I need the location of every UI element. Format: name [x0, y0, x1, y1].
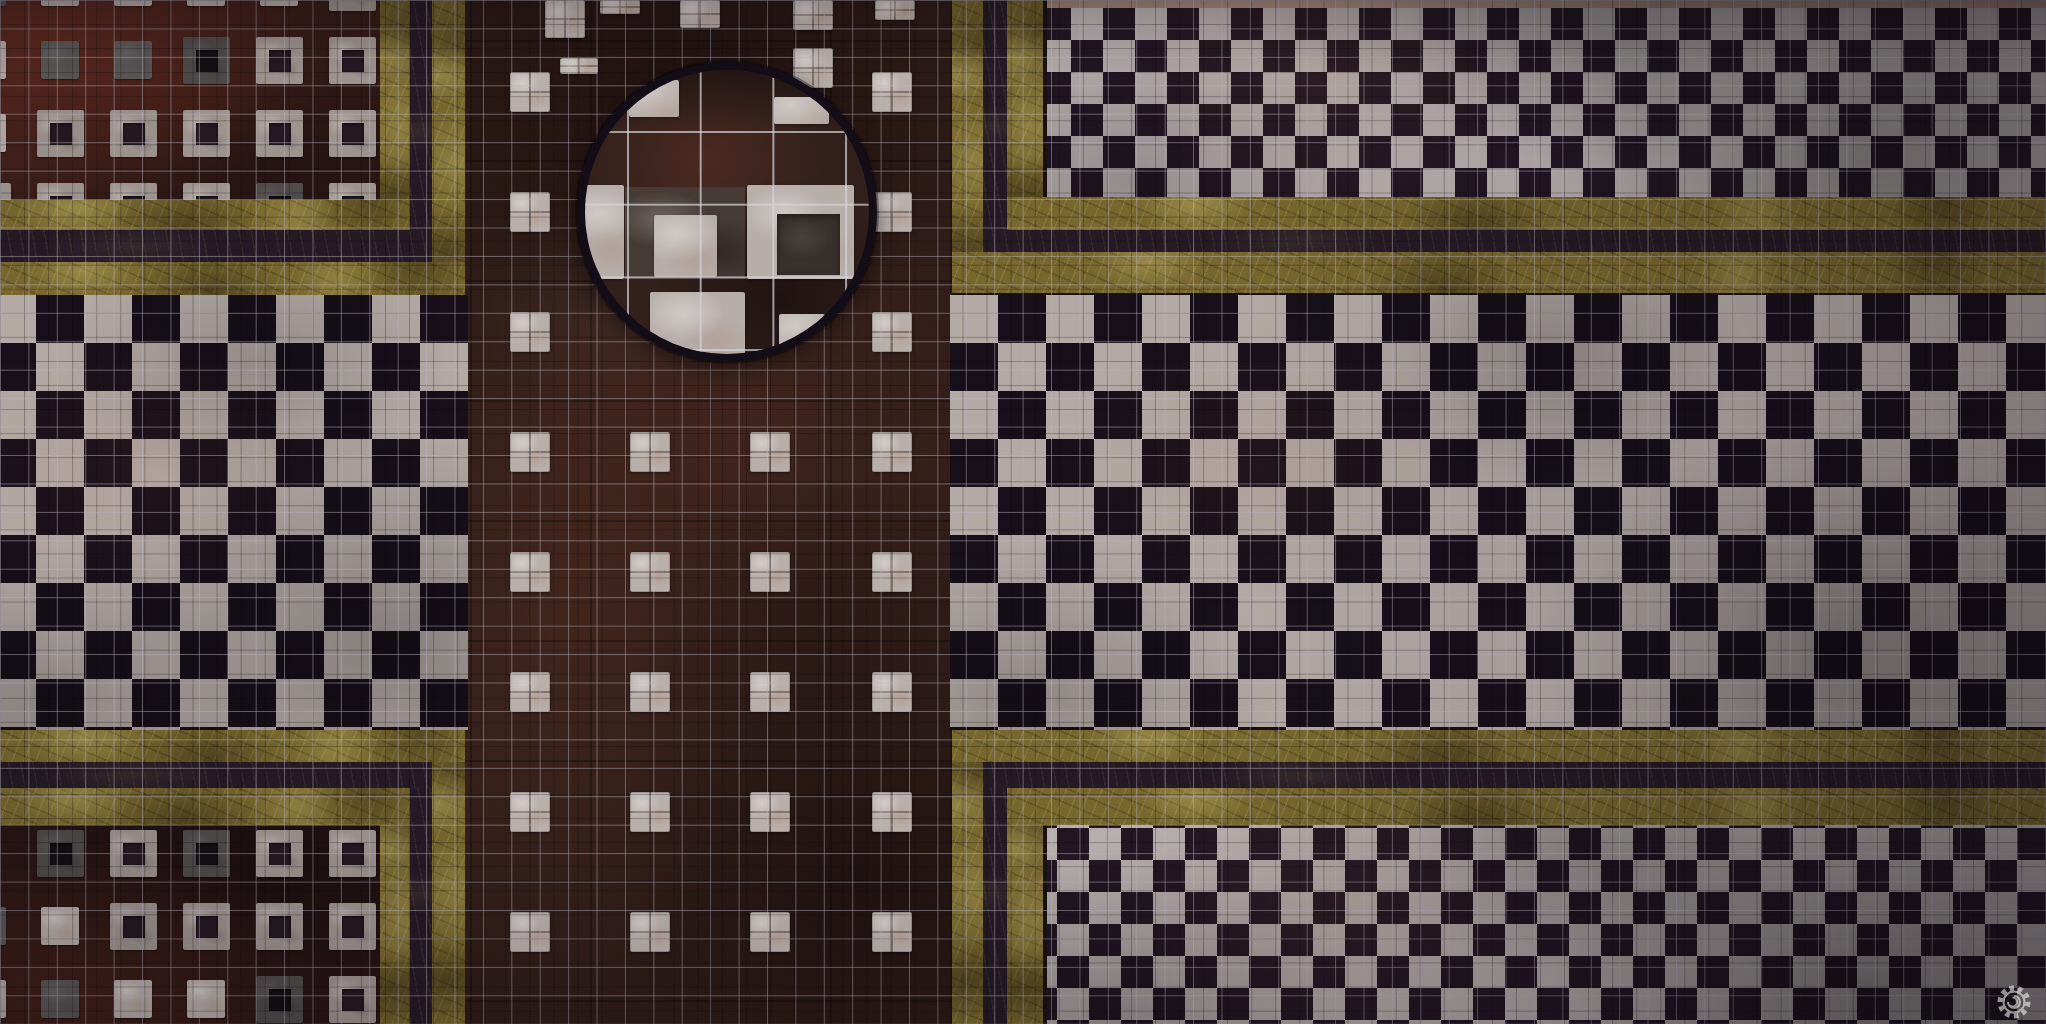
- battle-map: [0, 0, 2046, 1024]
- vignette-overlay: [0, 0, 2046, 1024]
